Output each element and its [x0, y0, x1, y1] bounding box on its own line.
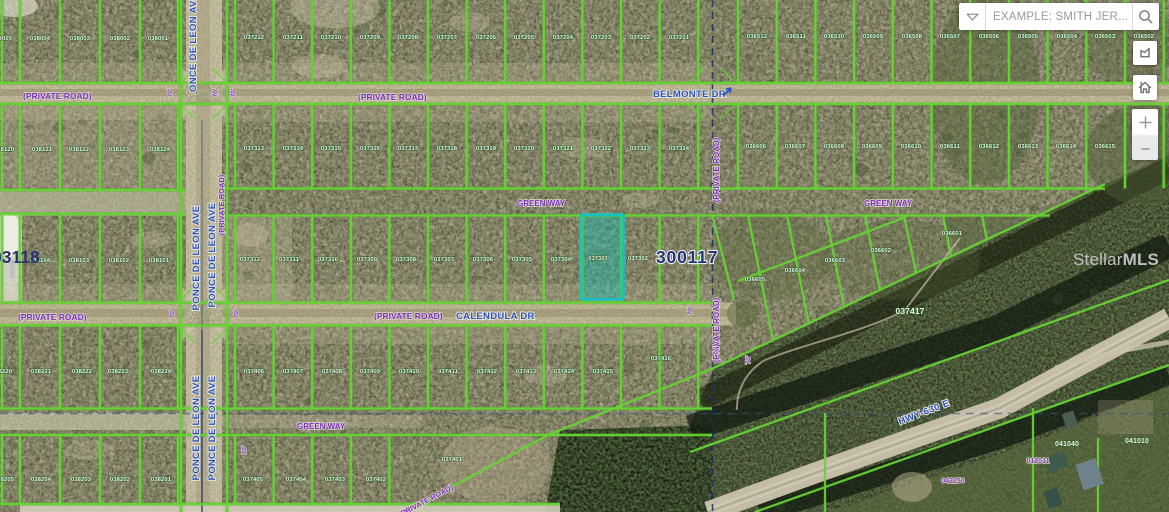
svg-text:036603: 036603 [825, 258, 846, 264]
svg-text:036613: 036613 [1018, 144, 1039, 150]
svg-text:037407: 037407 [283, 369, 304, 375]
svg-text:036606: 036606 [746, 144, 767, 150]
svg-text:036503: 036503 [1095, 34, 1116, 40]
svg-text:036602: 036602 [871, 248, 892, 254]
svg-text:(PRIVATE ROAD): (PRIVATE ROAD) [23, 91, 92, 101]
svg-text:036506: 036506 [979, 34, 1000, 40]
svg-text:037312: 037312 [240, 257, 261, 263]
svg-text:037410: 037410 [399, 369, 420, 375]
svg-text:037308: 037308 [396, 257, 417, 263]
svg-text:036615: 036615 [1095, 144, 1116, 150]
svg-text:036502: 036502 [1134, 34, 1155, 40]
svg-text:037208: 037208 [398, 35, 419, 41]
svg-text:037417: 037417 [896, 306, 925, 316]
svg-text:037317: 037317 [398, 146, 419, 152]
svg-text:038003: 038003 [70, 36, 91, 42]
svg-text:038223: 038223 [108, 369, 129, 375]
svg-text:038005: 038005 [0, 36, 13, 42]
svg-text:037416: 037416 [651, 356, 672, 362]
svg-text:038122: 038122 [69, 147, 90, 153]
svg-text:037324: 037324 [669, 146, 690, 152]
svg-text:038221: 038221 [31, 369, 52, 375]
svg-text:037315: 037315 [321, 146, 342, 152]
svg-text:037302: 037302 [628, 256, 649, 262]
svg-text:70': 70' [212, 88, 219, 97]
svg-text:70': 70' [169, 309, 176, 318]
svg-text:70': 70' [167, 88, 174, 97]
svg-text:037210: 037210 [321, 35, 342, 41]
svg-text:038002: 038002 [110, 36, 131, 42]
svg-text:037211: 037211 [283, 35, 304, 41]
svg-text:038121: 038121 [32, 147, 53, 153]
svg-text:CALENDULA DR: CALENDULA DR [456, 311, 535, 322]
svg-text:GREEN WAY: GREEN WAY [517, 199, 566, 208]
svg-text:037204: 037204 [553, 35, 574, 41]
svg-text:037316: 037316 [360, 146, 381, 152]
svg-text:GREEN WAY: GREEN WAY [297, 422, 346, 431]
svg-text:03118: 03118 [0, 247, 40, 267]
svg-text:042150: 042150 [941, 478, 964, 485]
svg-text:038222: 038222 [72, 369, 93, 375]
svg-text:037203: 037203 [591, 35, 612, 41]
svg-text:037414: 037414 [554, 369, 575, 375]
svg-text:037205: 037205 [514, 35, 535, 41]
svg-text:PONCE DE LEON AVE: PONCE DE LEON AVE [191, 206, 202, 311]
svg-text:(PRIVATE ROAD): (PRIVATE ROAD) [18, 312, 87, 322]
svg-text:037405: 037405 [243, 477, 264, 483]
svg-text:037206: 037206 [476, 35, 497, 41]
svg-text:038220: 038220 [0, 369, 13, 375]
svg-text:StellarMLS: StellarMLS [1073, 250, 1159, 269]
svg-text:036608: 036608 [824, 144, 845, 150]
svg-text:036512: 036512 [747, 34, 768, 40]
svg-text:012011: 012011 [1027, 458, 1050, 465]
svg-text:038120: 038120 [0, 147, 15, 153]
svg-text:(PRIVATE ROAD): (PRIVATE ROAD) [374, 311, 443, 321]
svg-text:70': 70' [713, 346, 720, 355]
svg-text:038204: 038204 [31, 477, 52, 483]
svg-text:038203: 038203 [71, 477, 92, 483]
svg-text:037207: 037207 [437, 35, 458, 41]
svg-text:037406: 037406 [244, 369, 265, 375]
svg-text:GREEN WAY: GREEN WAY [864, 199, 913, 208]
svg-text:038103: 038103 [69, 258, 90, 264]
svg-text:036507: 036507 [940, 34, 961, 40]
svg-text:036611: 036611 [940, 144, 961, 150]
svg-text:70': 70' [241, 445, 248, 454]
svg-text:036604: 036604 [785, 268, 806, 274]
svg-text:037415: 037415 [593, 369, 614, 375]
svg-text:041010: 041010 [1125, 438, 1149, 445]
svg-text:037404: 037404 [286, 477, 307, 483]
svg-text:037303: 037303 [588, 256, 607, 262]
svg-text:038102: 038102 [109, 258, 130, 264]
svg-text:037201: 037201 [669, 35, 690, 41]
svg-text:70': 70' [745, 355, 752, 364]
svg-text:037209: 037209 [360, 35, 381, 41]
svg-text:036614: 036614 [1056, 144, 1077, 150]
svg-text:037409: 037409 [360, 369, 381, 375]
svg-text:038124: 038124 [150, 147, 171, 153]
svg-text:300117: 300117 [656, 247, 718, 267]
svg-text:037323: 037323 [630, 146, 651, 152]
svg-text:PONCE DE LEON AVE: PONCE DE LEON AVE [207, 376, 218, 481]
svg-text:038123: 038123 [109, 147, 130, 153]
svg-text:037412: 037412 [477, 369, 498, 375]
svg-text:036510: 036510 [824, 34, 845, 40]
svg-text:036610: 036610 [901, 144, 922, 150]
svg-text:ONCE DE LEON AVE: ONCE DE LEON AVE [188, 0, 199, 92]
svg-text:038205: 038205 [0, 477, 15, 483]
svg-text:037314: 037314 [283, 146, 304, 152]
svg-text:037321: 037321 [553, 146, 574, 152]
svg-text:036511: 036511 [786, 34, 807, 40]
svg-text:(PRIVATE ROAD): (PRIVATE ROAD) [712, 137, 721, 202]
svg-text:038201: 038201 [151, 477, 172, 483]
svg-text:038224: 038224 [151, 369, 172, 375]
svg-text:037320: 037320 [514, 146, 535, 152]
svg-text:037306: 037306 [473, 257, 494, 263]
svg-text:037202: 037202 [630, 35, 651, 41]
svg-text:037311: 037311 [279, 257, 300, 263]
svg-text:036609: 036609 [862, 144, 883, 150]
svg-text:038004: 038004 [30, 36, 51, 42]
svg-text:PONCE DE LEON AVE: PONCE DE LEON AVE [191, 376, 202, 481]
svg-text:036601: 036601 [942, 231, 963, 237]
svg-text:037305: 037305 [512, 257, 533, 263]
svg-text:037307: 037307 [434, 257, 455, 263]
svg-text:038202: 038202 [110, 477, 131, 483]
svg-text:036607: 036607 [785, 144, 806, 150]
svg-text:037309: 037309 [357, 257, 378, 263]
svg-text:037408: 037408 [322, 369, 343, 375]
svg-text:(PRIVATE ROAD): (PRIVATE ROAD) [358, 92, 427, 102]
svg-text:037212: 037212 [244, 35, 265, 41]
svg-text:037313: 037313 [244, 146, 265, 152]
svg-text:037304: 037304 [551, 257, 572, 263]
svg-text:036504: 036504 [1057, 34, 1078, 40]
svg-text:036605: 036605 [745, 277, 766, 283]
svg-text:70': 70' [233, 309, 240, 318]
svg-text:037411: 037411 [438, 369, 459, 375]
svg-text:70': 70' [687, 306, 694, 315]
svg-text:036505: 036505 [1018, 34, 1039, 40]
svg-text:037322: 037322 [591, 146, 612, 152]
svg-text:037413: 037413 [516, 369, 537, 375]
svg-text:BELMONTE DR: BELMONTE DR [653, 89, 726, 100]
svg-text:(PRIVATE ROAD): (PRIVATE ROAD) [217, 174, 226, 235]
svg-text:037401: 037401 [442, 457, 463, 463]
svg-text:037402: 037402 [366, 477, 387, 483]
svg-text:037310: 037310 [318, 257, 339, 263]
svg-text:041040: 041040 [1055, 441, 1079, 448]
svg-text:70': 70' [230, 88, 237, 97]
svg-text:036612: 036612 [979, 144, 1000, 150]
svg-text:037403: 037403 [325, 477, 346, 483]
svg-text:038001: 038001 [148, 36, 169, 42]
svg-text:037319: 037319 [476, 146, 497, 152]
svg-text:036508: 036508 [902, 34, 923, 40]
svg-text:036509: 036509 [863, 34, 884, 40]
svg-text:037318: 037318 [437, 146, 458, 152]
svg-text:038101: 038101 [149, 258, 170, 264]
